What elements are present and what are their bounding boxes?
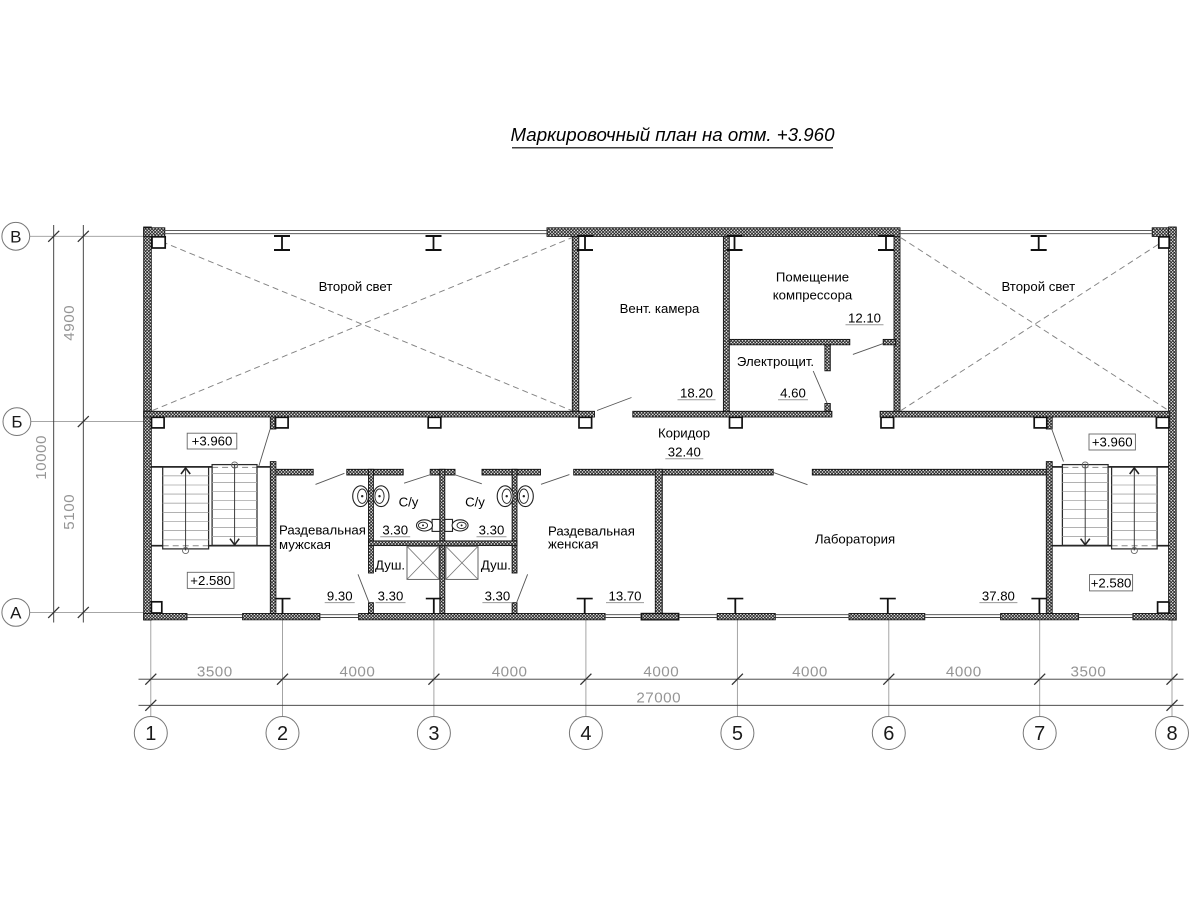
svg-text:13.70: 13.70 [608, 588, 641, 603]
svg-text:4.60: 4.60 [780, 386, 806, 401]
svg-text:4000: 4000 [492, 663, 528, 680]
svg-text:мужская: мужская [279, 537, 331, 552]
svg-text:3500: 3500 [1071, 663, 1107, 680]
svg-text:С/у: С/у [399, 494, 419, 509]
svg-text:Помещение: Помещение [776, 270, 849, 285]
svg-text:37.80: 37.80 [982, 588, 1015, 603]
svg-text:3.30: 3.30 [382, 523, 408, 538]
svg-text:6: 6 [883, 723, 894, 745]
svg-text:Второй свет: Второй свет [319, 279, 393, 294]
svg-text:9.30: 9.30 [327, 588, 353, 603]
svg-text:Душ.: Душ. [481, 558, 511, 573]
svg-text:Душ.: Душ. [375, 558, 405, 573]
svg-text:4900: 4900 [61, 305, 78, 341]
svg-text:С/у: С/у [465, 494, 485, 509]
svg-text:4000: 4000 [946, 663, 982, 680]
svg-text:компрессора: компрессора [773, 288, 853, 303]
svg-text:3.30: 3.30 [485, 588, 511, 603]
svg-text:5100: 5100 [61, 494, 78, 530]
svg-text:А: А [10, 603, 22, 622]
svg-text:8: 8 [1166, 723, 1177, 745]
svg-text:+3.960: +3.960 [1092, 435, 1133, 450]
svg-text:Второй свет: Второй свет [1001, 279, 1075, 294]
svg-text:5: 5 [732, 723, 743, 745]
svg-text:27000: 27000 [636, 690, 681, 707]
svg-text:4000: 4000 [792, 663, 828, 680]
svg-text:Б: Б [11, 413, 22, 432]
svg-text:+2.580: +2.580 [190, 573, 231, 588]
svg-text:женская: женская [548, 537, 599, 552]
svg-text:4: 4 [580, 723, 591, 745]
svg-text:Маркировочный план на отм. +3.: Маркировочный план на отм. +3.960 [511, 124, 836, 145]
svg-text:Электрощит.: Электрощит. [737, 354, 814, 369]
svg-text:32.40: 32.40 [668, 445, 701, 460]
svg-text:4000: 4000 [643, 663, 679, 680]
svg-text:18.20: 18.20 [680, 386, 713, 401]
svg-text:12.10: 12.10 [848, 311, 881, 326]
svg-text:3.30: 3.30 [479, 523, 505, 538]
svg-text:Раздевальная: Раздевальная [279, 523, 366, 538]
svg-text:3: 3 [428, 723, 439, 745]
svg-text:3500: 3500 [197, 663, 233, 680]
svg-text:Вент. камера: Вент. камера [620, 301, 700, 316]
svg-text:10000: 10000 [33, 435, 50, 480]
svg-text:1: 1 [145, 723, 156, 745]
svg-text:7: 7 [1034, 723, 1045, 745]
svg-text:4000: 4000 [340, 663, 376, 680]
svg-text:+2.580: +2.580 [1091, 576, 1132, 591]
svg-text:+3.960: +3.960 [192, 434, 233, 449]
svg-text:2: 2 [277, 723, 288, 745]
svg-text:Коридор: Коридор [658, 426, 710, 441]
svg-text:В: В [10, 227, 21, 246]
svg-text:3.30: 3.30 [378, 588, 404, 603]
svg-text:Лаборатория: Лаборатория [815, 532, 895, 547]
